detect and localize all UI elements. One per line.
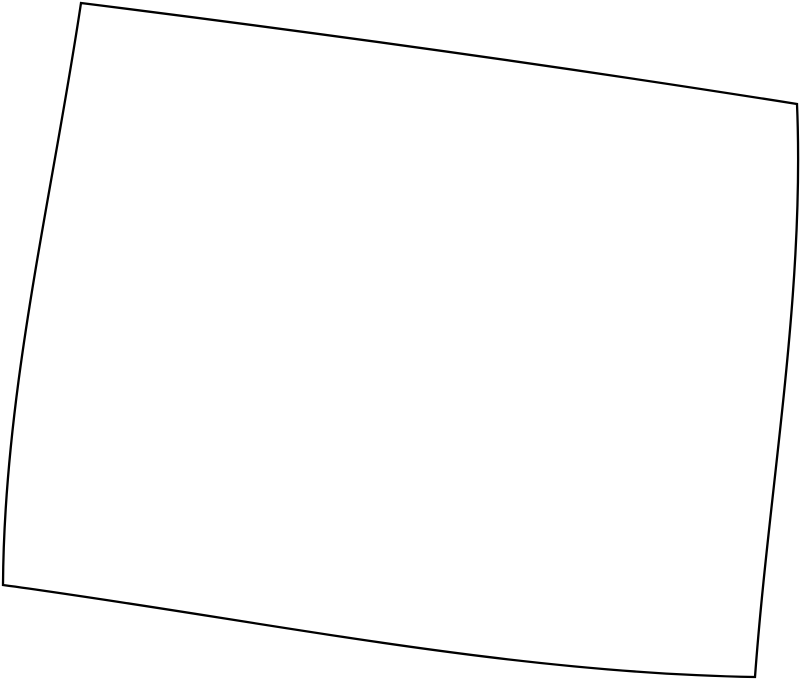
- map-canvas: [0, 0, 800, 683]
- state-outline-map: [0, 0, 800, 683]
- wyoming-state-outline-shape: [3, 3, 798, 677]
